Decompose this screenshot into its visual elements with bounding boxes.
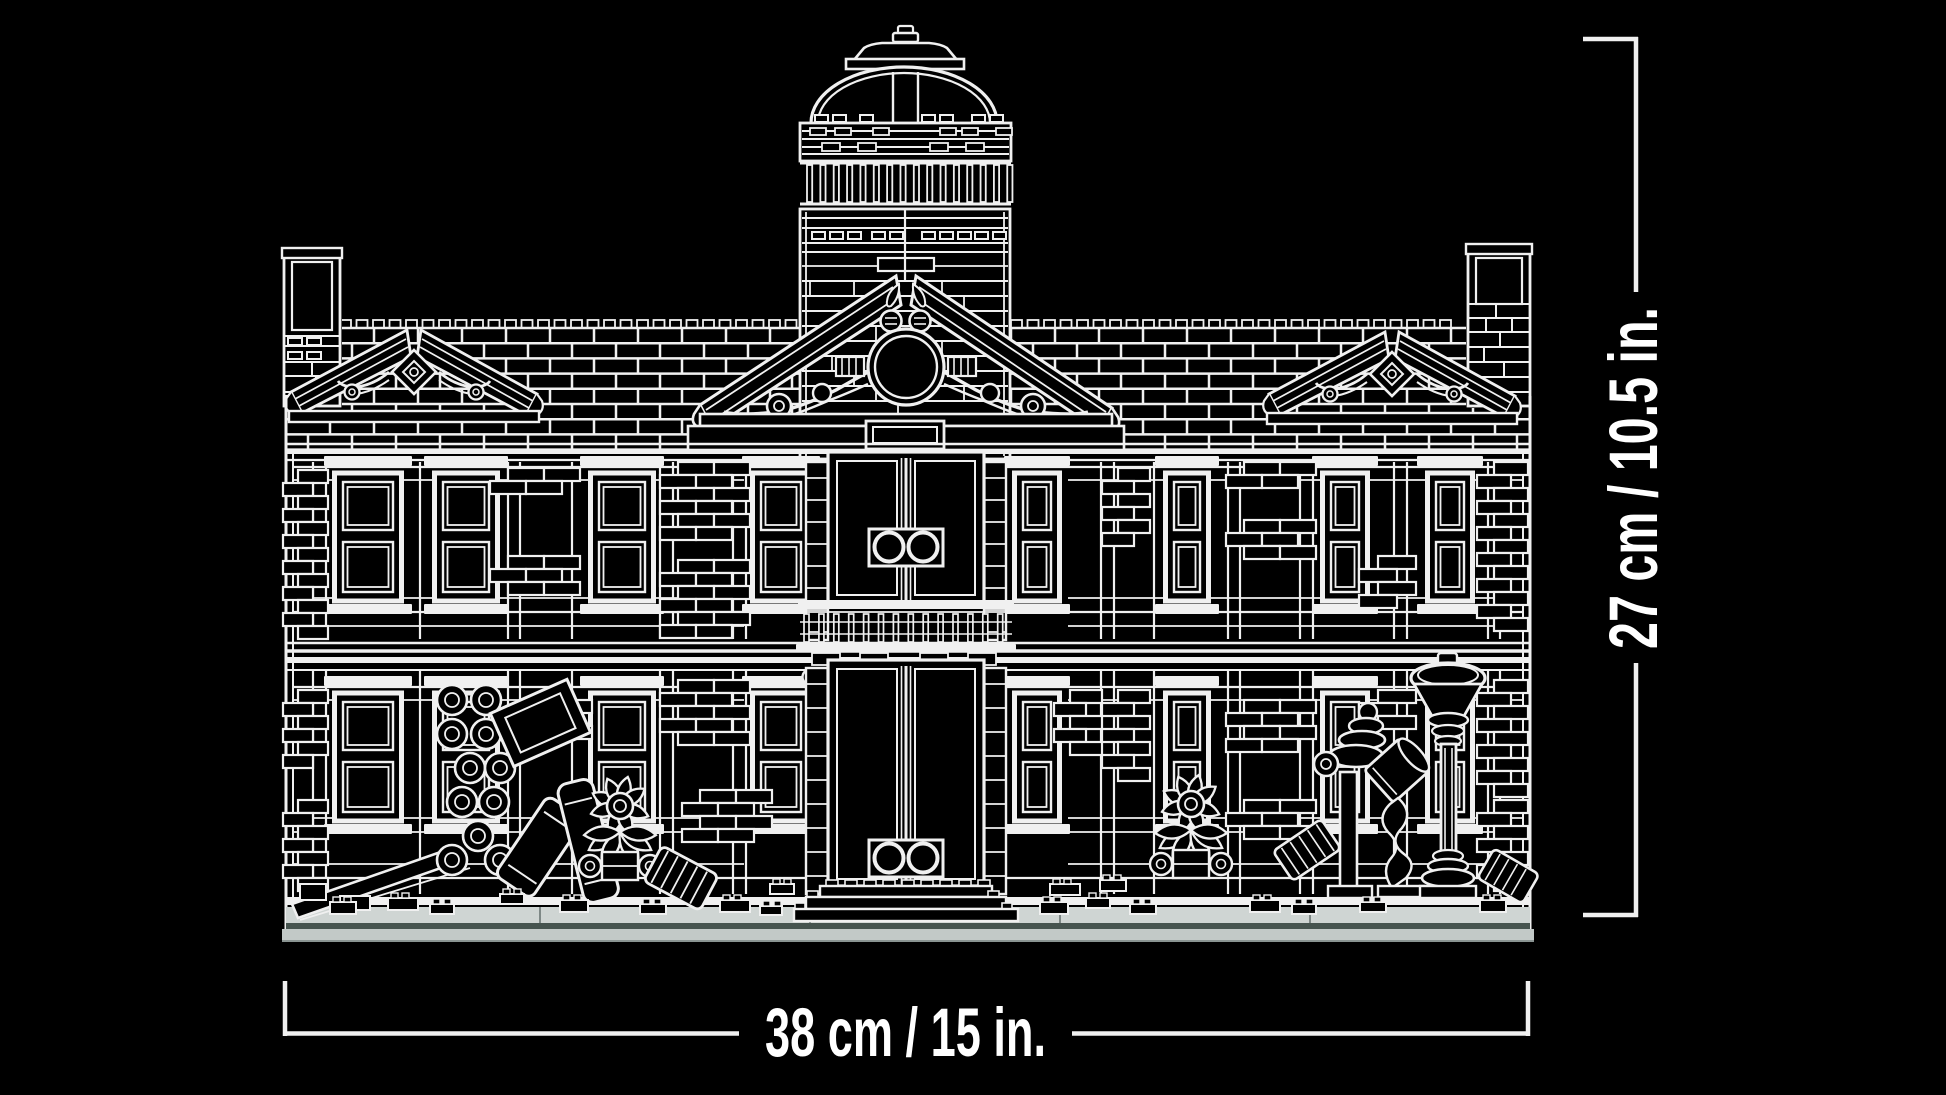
svg-text:27 cm / 10.5 in.: 27 cm / 10.5 in.	[1595, 307, 1672, 649]
svg-text:38 cm / 15 in.: 38 cm / 15 in.	[765, 994, 1046, 1071]
